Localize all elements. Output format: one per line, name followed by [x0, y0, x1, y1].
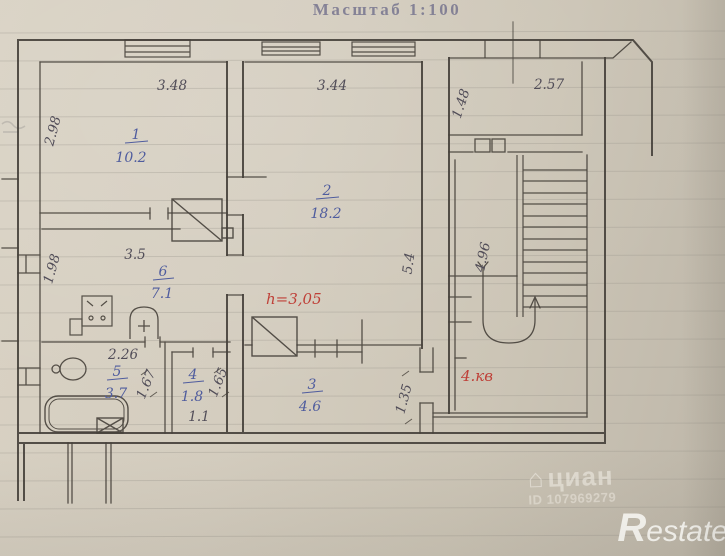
kitchen-stove [70, 296, 112, 335]
staircase [517, 155, 587, 317]
floorplan-drawing: 3.48 2.98 3.44 5.4 2.57 1.48 4.96 3.5 1.… [0, 0, 725, 556]
ceiling-height-note: h=3,05 [266, 290, 322, 308]
kitchen-heater [130, 307, 158, 339]
room3-area: 4.6 [298, 399, 321, 415]
dim-room2-depth: 5.4 [400, 252, 419, 276]
house-icon: ⌂ [527, 465, 544, 492]
room3-number: 3 [308, 377, 317, 393]
dim-room2-width: 3.44 [317, 78, 347, 94]
restate-logo-r: R [617, 506, 646, 550]
room4-number: 4 [188, 367, 198, 383]
cian-watermark-text: циан [547, 463, 614, 491]
room2-number: 2 [322, 183, 332, 199]
labels: 3.48 2.98 3.44 5.4 2.57 1.48 4.96 3.5 1.… [40, 77, 564, 425]
dim-hall-depth: 1.35 [393, 382, 416, 415]
cian-watermark: ⌂ циан ID 107969279 [527, 462, 616, 506]
outer-walls [18, 40, 652, 500]
room6-area: 7.1 [151, 286, 173, 302]
dim-room1-depth: 2.98 [41, 114, 65, 149]
dim-wc-width: 1.1 [188, 409, 209, 425]
scanned-floorplan-page: Масштаб 1:100 [0, 0, 725, 556]
room2-area: 18.2 [310, 206, 341, 222]
room4-area: 1.8 [181, 389, 203, 405]
dim-bath-width: 2.26 [107, 347, 138, 363]
dim-stairwell-depth: 4.96 [472, 240, 494, 274]
restate-watermark: Restate [617, 506, 725, 551]
dim-kitchen-width: 3.5 [124, 247, 145, 263]
room5-area: 3.7 [105, 386, 127, 402]
dim-room1-width: 3.48 [157, 78, 187, 94]
apartment-number-note: 4.кв [460, 367, 493, 385]
cian-watermark-id: ID 107969279 [528, 490, 616, 506]
paper-bleed-mark [2, 122, 25, 132]
room1-area: 10.2 [115, 150, 146, 166]
facade-windows [125, 40, 540, 58]
dim-entry-width: 2.57 [533, 77, 564, 93]
vent-shafts [172, 199, 297, 356]
paper-ruled-lines [0, 31, 725, 537]
room6-number: 6 [159, 264, 168, 280]
room5-number: 5 [113, 364, 122, 380]
room1-number: 1 [132, 127, 141, 143]
restate-logo-text: estate [646, 515, 725, 548]
